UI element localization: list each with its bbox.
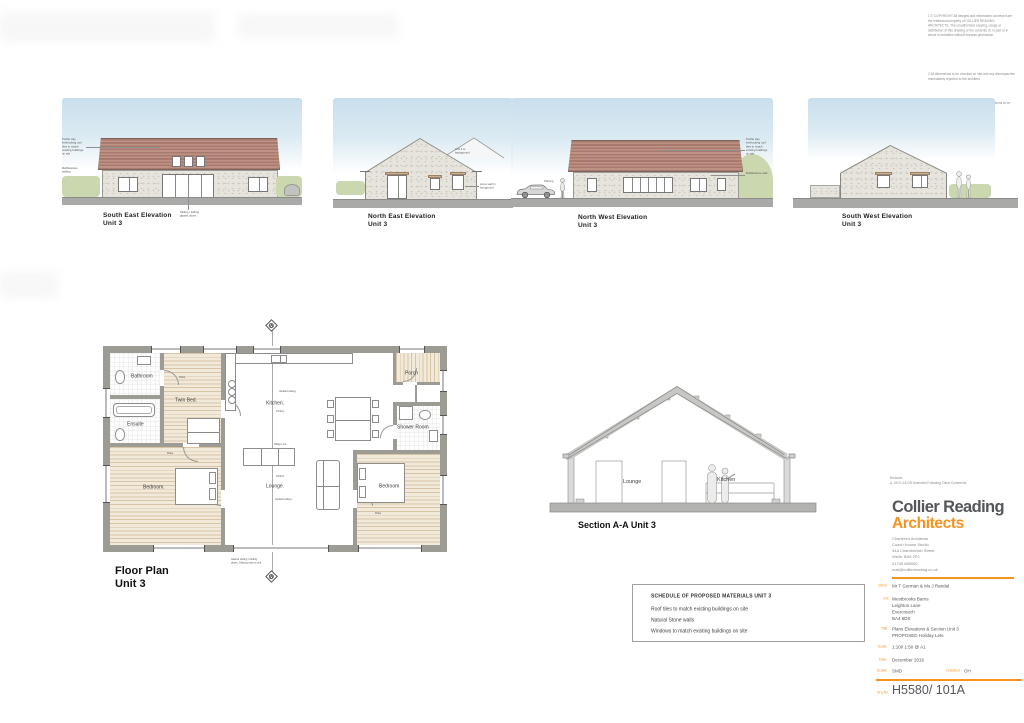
email-address: mail@collierreading.co.uk xyxy=(892,567,972,573)
field-label-date: Date xyxy=(879,658,891,662)
elevation-unit: Unit 3 xyxy=(368,221,436,229)
eaves-tick xyxy=(360,171,370,172)
schedule-item: Natural Stone walls xyxy=(651,617,861,624)
field-value-scale: 1:100 1:50 @ A1 xyxy=(892,644,972,651)
people-figures xyxy=(953,171,975,199)
door-opening xyxy=(440,475,447,505)
window xyxy=(430,178,440,190)
drawing-sheet: 1 © COPYRIGHT All designs and informatio… xyxy=(0,0,1024,723)
window-opening xyxy=(358,545,422,552)
floor-plan-title: Floor Plan Unit 3 xyxy=(115,565,169,591)
room-label-bedroom-left: Bedroom. xyxy=(143,484,175,491)
dining-chair xyxy=(372,415,379,423)
note-stone-wall: stone wall in foreground xyxy=(480,183,500,190)
floor-plan: A A xyxy=(103,340,455,600)
person-figure xyxy=(558,178,567,199)
elevation-title: South West Elevation xyxy=(842,213,912,221)
section-label-lounge: Lounge xyxy=(623,479,641,485)
partition xyxy=(393,353,396,385)
wall-left xyxy=(103,346,110,552)
toilet xyxy=(419,410,431,420)
twin-bed xyxy=(187,418,220,444)
elevation-north-west: Parking Profile clay interlocking roof t… xyxy=(511,98,773,230)
glazed-sliding-doors-opening xyxy=(233,545,329,552)
section-aa: Lounge Kitchen Section A-A Unit 3 xyxy=(548,382,818,542)
section-marker-bottom: A xyxy=(265,570,278,583)
window xyxy=(690,178,707,192)
section-drawing: Lounge Kitchen xyxy=(548,382,818,534)
kitchen-sink xyxy=(271,355,287,363)
room-label-twin: Twin Bed. xyxy=(175,397,207,404)
annotation-ridge-line: Ridge Line xyxy=(274,443,296,446)
kitchen-island xyxy=(243,448,295,466)
dining-table xyxy=(335,397,371,441)
schedule-title: SCHEDULE OF PROPOSED MATERIALS UNIT 3 xyxy=(651,593,861,600)
window xyxy=(587,178,597,192)
elevation-south-east: Profile clay interlocking roof tiles to … xyxy=(62,98,302,230)
stone-boulder xyxy=(284,184,300,196)
window-strip xyxy=(623,177,673,193)
note-dimensions: 2 All dimensions to be checked on site a… xyxy=(928,72,1016,82)
ground xyxy=(511,198,773,207)
ground xyxy=(333,199,513,208)
dining-chair xyxy=(372,430,379,438)
note-glazed-doors: Sliding / folding glazed doors xyxy=(180,211,202,218)
annotation-purlins: Purlins xyxy=(276,475,296,478)
ground xyxy=(62,197,302,205)
partition xyxy=(393,402,440,406)
partition xyxy=(110,395,160,399)
hob-ring xyxy=(228,396,236,404)
gable-building xyxy=(840,145,947,202)
materials-schedule: SCHEDULE OF PROPOSED MATERIALS UNIT 3 Ro… xyxy=(632,584,865,642)
note-roof-tiles: Profile clay interlocking roof tiles to … xyxy=(746,138,770,156)
elevation-north-east: Unit 4 in background stone wall in foreg… xyxy=(333,98,513,230)
window-opening xyxy=(103,388,110,418)
section-label-kitchen: Kitchen xyxy=(717,477,735,483)
divider-rule xyxy=(892,577,1014,579)
window-opening xyxy=(440,370,447,392)
annotation-vaulted-ceiling: Vaulted ceiling xyxy=(275,498,305,501)
window xyxy=(452,175,464,190)
elevation-title: North West Elevation xyxy=(578,214,647,222)
ground xyxy=(793,198,1018,208)
drawing-number: H5580/ 101A xyxy=(892,683,965,697)
hedge xyxy=(336,181,365,195)
hob-ring xyxy=(228,388,236,396)
divider-rule xyxy=(876,679,1022,681)
leader-line xyxy=(86,147,160,148)
section-marker-top: A xyxy=(265,319,278,332)
scan-artifact xyxy=(0,12,215,42)
sofa xyxy=(316,460,340,510)
door-swing xyxy=(380,425,393,438)
note-parking: Parking xyxy=(544,180,559,184)
window xyxy=(717,178,726,191)
clerestory-window xyxy=(196,156,205,167)
room-label-ensuite: Ensuite xyxy=(127,421,155,428)
note-rubblestone: Rubblestone wall xyxy=(746,172,768,176)
pillow xyxy=(359,486,366,498)
leader-line xyxy=(659,150,745,151)
field-value-date: December 2016 xyxy=(892,657,972,664)
annotation-vaulted-ceiling: Vaulted ceiling xyxy=(279,390,309,393)
field-value-job: Westbrooks Barns Leighton Lane Evercreec… xyxy=(892,596,1012,622)
field-label-drawn: Drawn xyxy=(877,669,892,673)
window-opening xyxy=(151,346,181,353)
window-opening xyxy=(153,545,205,552)
elevation-unit: Unit 3 xyxy=(842,221,912,229)
dining-chair xyxy=(327,430,334,438)
leader-line xyxy=(188,186,189,210)
field-value-checked: OH xyxy=(964,668,994,675)
eaves-tick xyxy=(472,171,482,172)
hedge xyxy=(62,176,100,197)
field-label-title: Title xyxy=(881,627,892,631)
scan-artifact xyxy=(238,14,398,38)
room-label-kitchen: Kitchen. xyxy=(266,400,296,407)
field-label-client: Client xyxy=(878,584,891,588)
revision-text: A. 09.01.18 OH Amended Following Client … xyxy=(890,481,966,485)
revision-block: Revision: A. 09.01.18 OH Amended Followi… xyxy=(890,476,1020,486)
gable-building xyxy=(365,138,477,200)
leader-line xyxy=(711,175,745,176)
clerestory-window xyxy=(172,156,181,167)
pillow xyxy=(209,488,216,500)
basin xyxy=(429,430,438,442)
window xyxy=(118,177,138,192)
elevation-label: North East Elevation Unit 3 xyxy=(368,213,436,230)
elevation-unit: Unit 3 xyxy=(578,222,647,230)
window-opening xyxy=(253,346,281,353)
annotation-robe: Robe xyxy=(179,376,194,379)
low-stone-wall xyxy=(810,185,840,198)
scan-artifact xyxy=(0,272,58,298)
room-label-lounge: Lounge. xyxy=(266,483,294,490)
section-title: Section A-A Unit 3 xyxy=(578,520,656,530)
porch-door-opening xyxy=(399,346,425,353)
practice-address: Chartered Architects Coach House Studio … xyxy=(892,536,992,560)
clerestory-window xyxy=(184,156,193,167)
hob-ring xyxy=(228,380,236,388)
elevation-title: North East Elevation xyxy=(368,213,436,221)
elevation-label: South West Elevation Unit 3 xyxy=(842,213,912,230)
toilet xyxy=(115,428,125,441)
entrance-door xyxy=(387,175,407,199)
window xyxy=(877,175,890,188)
dining-chair xyxy=(327,400,334,408)
floor-plan-unit-text: Unit 3 xyxy=(115,578,169,591)
field-value-client: Mr T Gorman & Ms J Randal xyxy=(892,583,1012,590)
elevation-label: North West Elevation Unit 3 xyxy=(578,214,647,231)
revision-label: Revision: xyxy=(890,477,903,481)
pillow xyxy=(209,472,216,484)
annotation-robe: Robe xyxy=(375,512,390,515)
field-value-title: Plans Elevations & Section Unit 3 PROPOS… xyxy=(892,626,1017,639)
room-label-porch: Porch xyxy=(405,370,427,377)
elevation-title: South East Elevation xyxy=(103,212,172,220)
partition xyxy=(160,353,164,445)
partition xyxy=(353,450,444,454)
partition xyxy=(415,385,417,402)
logo-architects: Architects xyxy=(892,515,964,533)
room-label-bedroom-right: Bedroom xyxy=(379,483,409,490)
window xyxy=(912,175,928,188)
annotation-robe: Robe xyxy=(167,452,182,455)
door-gap xyxy=(393,425,397,439)
dining-chair xyxy=(372,400,379,408)
field-label-scale: Scale xyxy=(878,645,891,649)
annotation-purlins: Purlins xyxy=(276,410,296,413)
elevation-label: South East Elevation Unit 3 xyxy=(103,212,172,229)
note-copyright: 1 © COPYRIGHT All designs and informatio… xyxy=(928,14,1016,38)
room-label-shower: Shower Room xyxy=(397,424,439,431)
dining-chair xyxy=(327,415,334,423)
schedule-item: Windows to match existing buildings on s… xyxy=(651,628,861,635)
bathtub xyxy=(113,403,155,417)
elevation-south-west: South West Elevation Unit 3 xyxy=(793,98,1018,230)
kitchen-counter xyxy=(225,353,353,364)
field-label-checked: Checked xyxy=(946,669,965,673)
note-roof-tiles: Profile clay interlocking roof tiles to … xyxy=(62,138,85,156)
floor-plan-title-text: Floor Plan xyxy=(115,565,169,578)
schedule-item: Roof tiles to match existing buildings o… xyxy=(651,606,861,613)
room-label-bathroom: Bathroom xyxy=(131,373,161,380)
door-gap xyxy=(221,490,225,508)
pillow xyxy=(359,468,366,480)
window-opening xyxy=(203,346,237,353)
field-value-drawn: SMD xyxy=(892,668,932,675)
leader-line xyxy=(465,186,479,187)
window xyxy=(248,177,268,192)
basin xyxy=(137,356,151,365)
field-label-drgno: Drg No xyxy=(877,691,892,695)
note-walling: Rubblestone walling xyxy=(62,167,82,174)
elevation-unit: Unit 3 xyxy=(103,220,172,228)
window-opening xyxy=(440,415,447,435)
shower-tray xyxy=(399,406,413,420)
toilet xyxy=(115,370,125,384)
roof xyxy=(568,140,743,172)
window-opening xyxy=(103,465,110,503)
car-figure xyxy=(516,183,556,199)
annotation-glazed-doors: Glazed sliding / folding doors. Glazing … xyxy=(231,558,264,565)
title-block: Revision: A. 09.01.18 OH Amended Followi… xyxy=(876,470,1024,720)
